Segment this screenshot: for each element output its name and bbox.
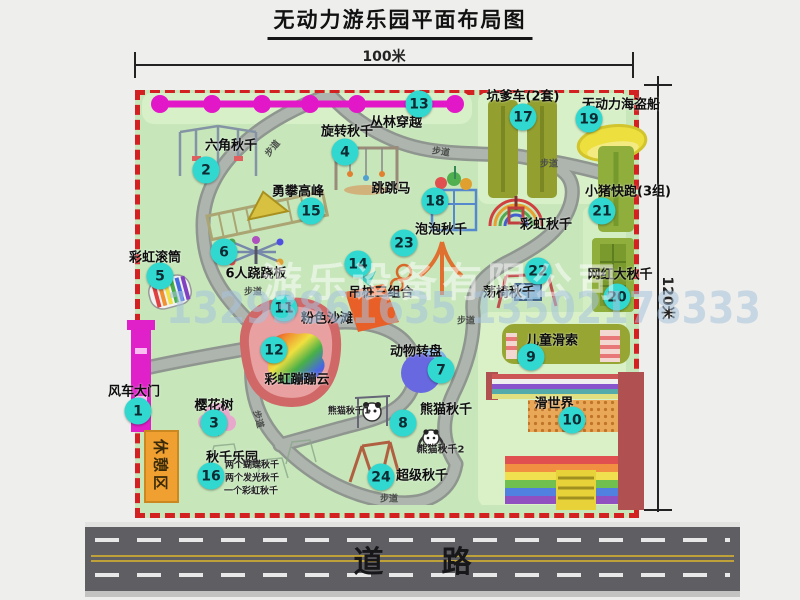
label-pink-beach: 粉色沙滩: [301, 308, 353, 327]
label-panda-swing-1: 熊猫秋千1: [328, 404, 370, 417]
label-panda-swing-2: 熊猫秋千2: [418, 441, 465, 456]
label-hanging-piles: 吊桩三组合: [348, 282, 413, 301]
badge-4: 4: [332, 139, 359, 166]
label-rainbow-cloud: 彩虹蹦蹦云: [264, 369, 329, 388]
label-seesaw: 6人跷跷板: [225, 263, 286, 282]
label-climbing-peak: 勇攀高峰: [272, 181, 324, 200]
label-windmill-gate: 风车大门: [108, 381, 160, 400]
label-pit-car: 坑爹车(2套): [487, 86, 560, 105]
footpath-label: 步道: [540, 157, 558, 170]
badge-14: 14: [345, 251, 372, 278]
badge-8: 8: [390, 410, 417, 437]
badge-5: 5: [147, 263, 174, 290]
badge-6: 6: [211, 239, 238, 266]
footpath-label: 步道: [244, 285, 262, 298]
badge-18: 18: [422, 188, 449, 215]
badge-11: 11: [271, 295, 298, 322]
label-rocking-chair-swing: 荡椅秋千: [483, 282, 535, 301]
footpath-label: 步道: [431, 143, 451, 158]
badge-22: 22: [525, 258, 552, 285]
footpath-label: 步道: [380, 492, 398, 505]
badge-13: 13: [406, 91, 433, 118]
footpath-label: 步道: [457, 314, 475, 327]
label-hexagon-swing: 六角秋千: [205, 135, 257, 154]
badge-10: 10: [559, 407, 586, 434]
badge-17: 17: [510, 104, 537, 131]
badge-24: 24: [368, 464, 395, 491]
badge-19: 19: [576, 106, 603, 133]
badge-12: 12: [261, 337, 288, 364]
badge-9: 9: [518, 344, 545, 371]
badge-7: 7: [428, 357, 455, 384]
label-piggy-run: 小猪快跑(3组): [585, 181, 671, 200]
park-plan-image: 无动力游乐园平面布局图: [0, 0, 800, 600]
badge-15: 15: [298, 198, 325, 225]
label-big-swing: 网红大秋千: [587, 264, 652, 283]
badge-20: 20: [604, 284, 631, 311]
swing-park-note-2: 两个发光秋千: [225, 471, 279, 484]
label-bubble-swing: 泡泡秋千: [415, 219, 467, 238]
label-rainbow-swing: 彩虹秋千: [520, 214, 572, 233]
label-panda-swing: 熊猫秋千: [420, 399, 472, 418]
label-super-swing: 超级秋千: [396, 465, 448, 484]
label-jumping-horse: 跳跳马: [371, 178, 410, 197]
badge-2: 2: [193, 157, 220, 184]
badge-21: 21: [589, 198, 616, 225]
label-animal-turntable: 动物转盘: [390, 341, 442, 360]
swing-park-note-1: 两个蝴蝶秋千: [225, 458, 279, 471]
rest-area-label: 休憩区: [151, 439, 172, 493]
badge-16: 16: [198, 463, 225, 490]
label-rotating-swing: 旋转秋千: [321, 121, 373, 140]
swing-park-note-3: 一个彩虹秋千: [224, 484, 278, 497]
badge-3: 3: [201, 410, 228, 437]
badge-1: 1: [125, 398, 152, 425]
badge-23: 23: [391, 230, 418, 257]
